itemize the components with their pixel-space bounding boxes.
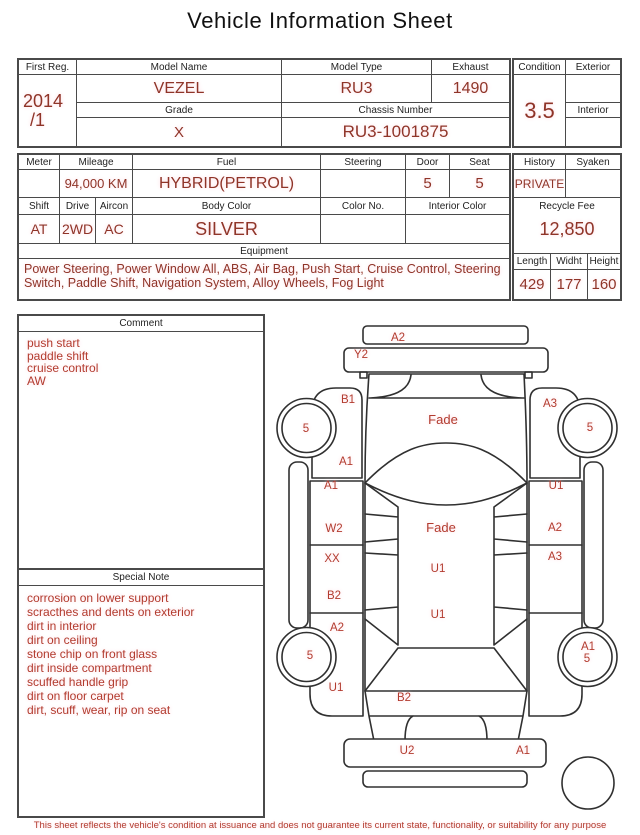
damage-code-label: U2 — [400, 745, 415, 757]
damage-code-label: A1 — [581, 641, 595, 653]
mileage-value: 94,000 KM — [60, 170, 133, 197]
sill-panel-right — [584, 462, 603, 628]
recycle-fee-section: Recycle Fee 12,850 — [514, 198, 620, 254]
fuel-header: Fuel — [133, 155, 321, 169]
equipment-header-row: Equipment — [19, 244, 509, 259]
body-color-header: Body Color — [133, 198, 321, 214]
height-value: 160 — [588, 270, 620, 299]
specs-table: Meter Mileage Fuel Steering Door Seat 94… — [17, 153, 511, 301]
recycle-fee-cell: Recycle Fee 12,850 — [514, 198, 620, 253]
special-note-line: scuffed handle grip — [27, 675, 255, 689]
damage-code-label: A2 — [391, 332, 405, 344]
interior-grade — [566, 118, 620, 146]
body-color-value: SILVER — [133, 215, 321, 243]
damage-code-label: U1 — [329, 682, 344, 694]
chassis-number-header: Chassis Number — [282, 103, 509, 118]
comment-box: Comment push startpaddle shiftcruise con… — [17, 314, 265, 570]
first-reg-header: First Reg. — [19, 60, 77, 75]
special-note-line: dirt in interior — [27, 619, 255, 633]
grade-value: X — [77, 118, 282, 146]
aircon-header: Aircon — [96, 198, 133, 214]
syaken-header: Syaken — [566, 155, 620, 169]
special-note-box: Special Note corrosion on lower supports… — [17, 568, 265, 818]
model-name-header: Model Name — [77, 60, 282, 75]
history-header-row: History Syaken — [514, 155, 620, 170]
history-value: PRIVATE — [514, 170, 566, 197]
spare-wheel — [562, 757, 614, 809]
syaken-value — [566, 170, 620, 197]
length-header: Length — [514, 254, 551, 269]
exhaust-value: 1490 — [432, 75, 509, 103]
page-title: Vehicle Information Sheet — [0, 8, 640, 34]
damage-code-label: A2 — [330, 622, 344, 634]
drive-header: Drive — [60, 198, 96, 214]
steering-value — [321, 170, 406, 197]
history-table: History Syaken PRIVATE Recycle Fee 12,85… — [512, 153, 622, 301]
special-note-header: Special Note — [19, 570, 263, 586]
special-note-line: scracthes and dents on exterior — [27, 605, 255, 619]
exterior-grade — [566, 75, 620, 103]
recycle-fee-value: 12,850 — [539, 219, 594, 240]
damage-code-label: B2 — [397, 692, 411, 704]
model-type-header: Model Type — [282, 60, 432, 75]
damage-code-label: 5 — [307, 650, 313, 662]
damage-code-label: Fade — [428, 412, 458, 427]
history-value-row: PRIVATE — [514, 170, 620, 198]
registration-table: First Reg. 2014 /1 Model Name VEZEL Mode… — [17, 58, 511, 148]
model-type-value: RU3 — [282, 75, 432, 103]
mileage-header: Mileage — [60, 155, 133, 169]
meter-header: Meter — [19, 155, 60, 169]
condition-score: 3.5 — [514, 75, 566, 146]
hatch-panel — [365, 691, 527, 741]
interior-color-value — [406, 215, 509, 243]
specs-value-row-2: AT 2WD AC SILVER — [19, 215, 509, 244]
equipment-value-row: Power Steering, Power Window All, ABS, A… — [19, 259, 509, 299]
first-reg-year: 2014 — [23, 92, 63, 111]
comment-line: AW — [27, 375, 255, 388]
damage-code-label: U1 — [431, 609, 446, 621]
condition-header: Condition — [514, 60, 566, 75]
meter-value — [19, 170, 60, 197]
damage-code-label: A1 — [324, 480, 338, 492]
condition-table: Condition 3.5 Exterior Interior — [512, 58, 622, 148]
damage-code-label: U1 — [549, 480, 564, 492]
first-reg-value: 2014 /1 — [19, 75, 77, 146]
seat-value: 5 — [450, 170, 509, 197]
door-value: 5 — [406, 170, 450, 197]
specs-value-row-1: 94,000 KM HYBRID(PETROL) 5 5 — [19, 170, 509, 198]
specs-header-row-1: Meter Mileage Fuel Steering Door Seat — [19, 155, 509, 170]
equipment-value: Power Steering, Power Window All, ABS, A… — [19, 259, 509, 299]
grade-header: Grade — [77, 103, 282, 118]
special-note-line: corrosion on lower support — [27, 591, 255, 605]
damage-code-label: 5 — [584, 653, 590, 665]
front-bumper-upper — [363, 326, 528, 344]
vehicle-information-sheet: Vehicle Information Sheet First Reg. 201… — [0, 0, 640, 835]
vehicle-damage-diagram: A2Y2B1A355FadeA1A1U1W2FadeA2XXA3U1B2U1A2… — [268, 312, 640, 810]
damage-code-label: A3 — [543, 398, 557, 410]
damage-code-label: A2 — [548, 522, 562, 534]
model-name-value: VEZEL — [77, 75, 282, 103]
recycle-fee-header: Recycle Fee — [539, 201, 595, 212]
special-note-line: dirt on floor carpet — [27, 689, 255, 703]
shift-value: AT — [19, 215, 60, 243]
length-value: 429 — [514, 270, 551, 299]
front-bumper-lower — [344, 348, 548, 372]
exhaust-header: Exhaust — [432, 60, 509, 75]
comment-body: push startpaddle shiftcruise controlAW — [19, 332, 263, 392]
aircon-value: AC — [96, 215, 133, 243]
rear-bumper-lower — [363, 771, 527, 787]
door-header: Door — [406, 155, 450, 169]
damage-code-label: A1 — [339, 456, 353, 468]
damage-code-label: XX — [324, 553, 340, 565]
interior-header: Interior — [566, 103, 620, 118]
damage-code-label: Fade — [426, 520, 456, 535]
damage-code-label: 5 — [303, 423, 309, 435]
steering-header: Steering — [321, 155, 406, 169]
special-note-body: corrosion on lower supportscracthes and … — [19, 586, 263, 722]
damage-code-label: 5 — [587, 422, 593, 434]
comment-line: cruise control — [27, 362, 255, 375]
damage-code-label: A1 — [516, 745, 530, 757]
seat-header: Seat — [450, 155, 509, 169]
width-value: 177 — [551, 270, 588, 299]
color-no-header: Color No. — [321, 198, 406, 214]
width-header: Widht — [551, 254, 588, 269]
damage-code-label: B1 — [341, 394, 355, 406]
special-note-line: stone chip on front glass — [27, 647, 255, 661]
exterior-header: Exterior — [566, 60, 620, 75]
sill-panel-left — [289, 462, 308, 628]
first-reg-month: /1 — [30, 111, 45, 130]
special-note-line: dirt inside compartment — [27, 661, 255, 675]
color-no-value — [321, 215, 406, 243]
fuel-value: HYBRID(PETROL) — [133, 170, 321, 197]
specs-header-row-2: Shift Drive Aircon Body Color Color No. … — [19, 198, 509, 215]
height-header: Height — [588, 254, 620, 269]
damage-code-label: B2 — [327, 590, 341, 602]
shift-header: Shift — [19, 198, 60, 214]
comment-line: push start — [27, 337, 255, 350]
interior-color-header: Interior Color — [406, 198, 509, 214]
disclaimer-text: This sheet reflects the vehicle's condit… — [0, 820, 640, 831]
damage-code-label: U1 — [431, 563, 446, 575]
history-header: History — [514, 155, 566, 169]
special-note-line: dirt on ceiling — [27, 633, 255, 647]
chassis-number-value: RU3-1001875 — [282, 118, 509, 146]
damage-code-label: Y2 — [354, 349, 368, 361]
damage-code-label: W2 — [325, 523, 342, 535]
drive-value: 2WD — [60, 215, 96, 243]
damage-code-label: A3 — [548, 551, 562, 563]
special-note-line: dirt, scuff, wear, rip on seat — [27, 703, 255, 717]
dimensions-value-row: 429 177 160 — [514, 270, 620, 299]
comment-header: Comment — [19, 316, 263, 332]
equipment-header: Equipment — [19, 244, 509, 258]
dimensions-header-row: Length Widht Height — [514, 254, 620, 270]
